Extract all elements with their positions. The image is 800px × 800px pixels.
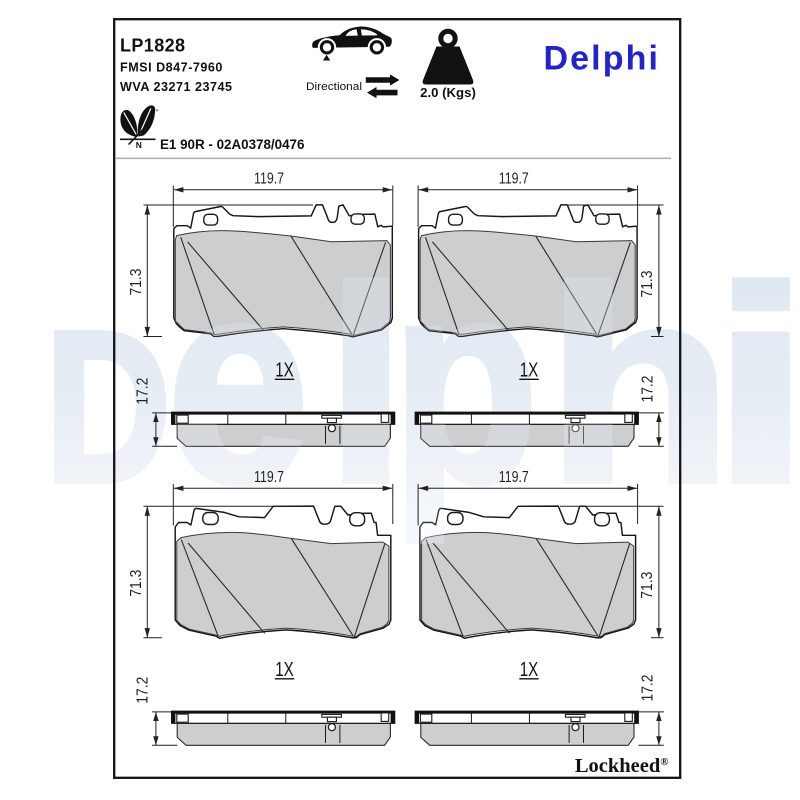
svg-text:1X: 1X [275,659,294,681]
svg-text:Directional: Directional [306,81,362,93]
svg-text:LP1828: LP1828 [120,36,185,56]
svg-text:2.0 (Kgs): 2.0 (Kgs) [420,85,476,100]
svg-text:N: N [136,140,142,150]
svg-text:E1 90R - 02A0378/0476: E1 90R - 02A0378/0476 [160,137,304,152]
svg-text:1X: 1X [520,360,539,382]
svg-text:1X: 1X [275,360,294,382]
svg-text:1X: 1X [520,659,539,681]
svg-text:WVA 23271 23745: WVA 23271 23745 [120,80,233,94]
svg-text:FMSI D847-7960: FMSI D847-7960 [120,60,223,74]
svg-text:Lockheed®: Lockheed® [575,755,669,777]
svg-text:D: D [45,286,171,527]
svg-text:i: i [711,230,800,540]
svg-text:Delphi: Delphi [544,40,661,78]
svg-text:™: ™ [153,109,159,115]
